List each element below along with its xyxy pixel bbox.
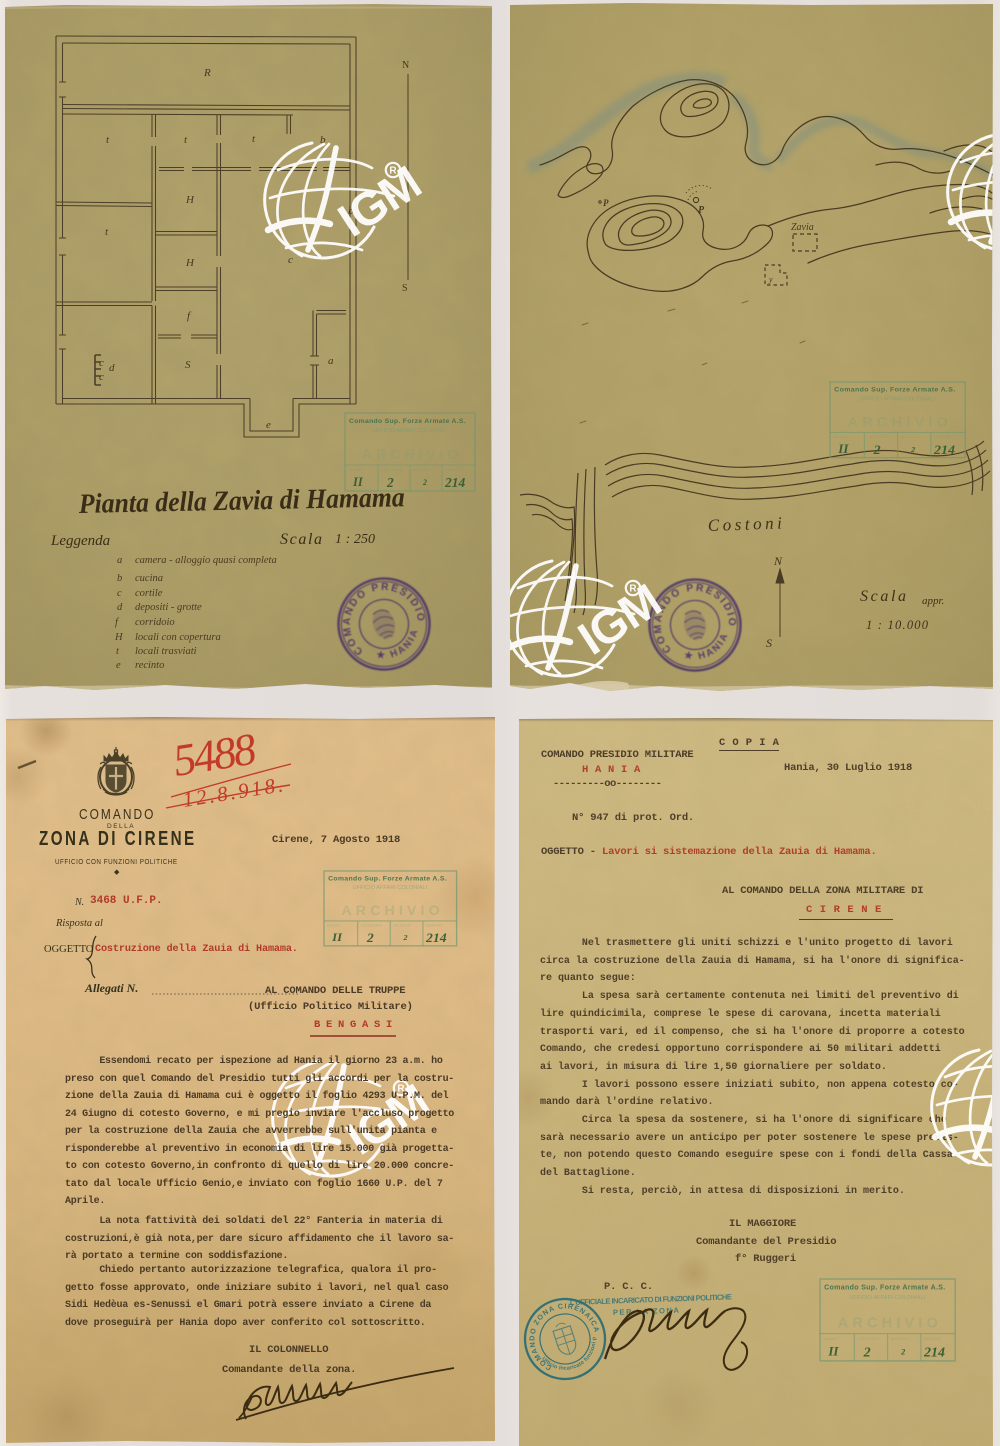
svg-text:P: P	[698, 205, 705, 216]
svg-text:S: S	[766, 636, 772, 650]
svg-text:Scala: Scala	[860, 588, 906, 605]
svg-text:e: e	[266, 419, 271, 431]
svg-text:camera - alloggio quasi comple: camera - alloggio quasi completa	[135, 555, 277, 566]
svg-text:P: P	[603, 198, 609, 208]
svg-text:c: c	[99, 357, 104, 369]
svg-text:H: H	[114, 632, 124, 643]
svg-text:corridoio: corridoio	[135, 617, 175, 628]
svg-text:cucina: cucina	[135, 573, 163, 584]
svg-text:c: c	[99, 371, 104, 383]
svg-text:d: d	[109, 362, 115, 374]
svg-text:b: b	[117, 573, 122, 584]
svg-text:e: e	[116, 660, 121, 671]
svg-text:S: S	[185, 359, 191, 371]
svg-text:c: c	[117, 588, 122, 599]
svg-text:1 : 250: 1 : 250	[335, 532, 375, 547]
svg-text:Costoni: Costoni	[707, 513, 782, 535]
svg-text:locali con copertura: locali con copertura	[135, 632, 221, 643]
svg-text:S: S	[402, 283, 408, 294]
svg-text:y: y	[768, 275, 773, 284]
svg-text:cortile: cortile	[135, 588, 163, 599]
svg-text:locali trasviati: locali trasviati	[135, 646, 197, 657]
svg-text:d: d	[117, 602, 123, 613]
svg-text:H: H	[185, 194, 195, 206]
svg-text:Zavia: Zavia	[791, 222, 814, 233]
svg-text:Leggenda: Leggenda	[50, 533, 110, 549]
svg-text:R: R	[203, 67, 211, 79]
svg-text:recinto: recinto	[135, 660, 164, 671]
svg-text:H: H	[185, 257, 195, 269]
svg-text:depositi - grotte: depositi - grotte	[135, 602, 202, 613]
svg-text:appr.: appr.	[922, 595, 944, 607]
svg-text:1 : 10.000: 1 : 10.000	[866, 618, 929, 632]
svg-text:a: a	[117, 555, 122, 566]
svg-text:a: a	[328, 355, 334, 367]
svg-text:c: c	[288, 254, 293, 266]
svg-text:Scala: Scala	[280, 531, 322, 548]
svg-text:N: N	[402, 60, 409, 71]
svg-text:N: N	[773, 554, 783, 568]
